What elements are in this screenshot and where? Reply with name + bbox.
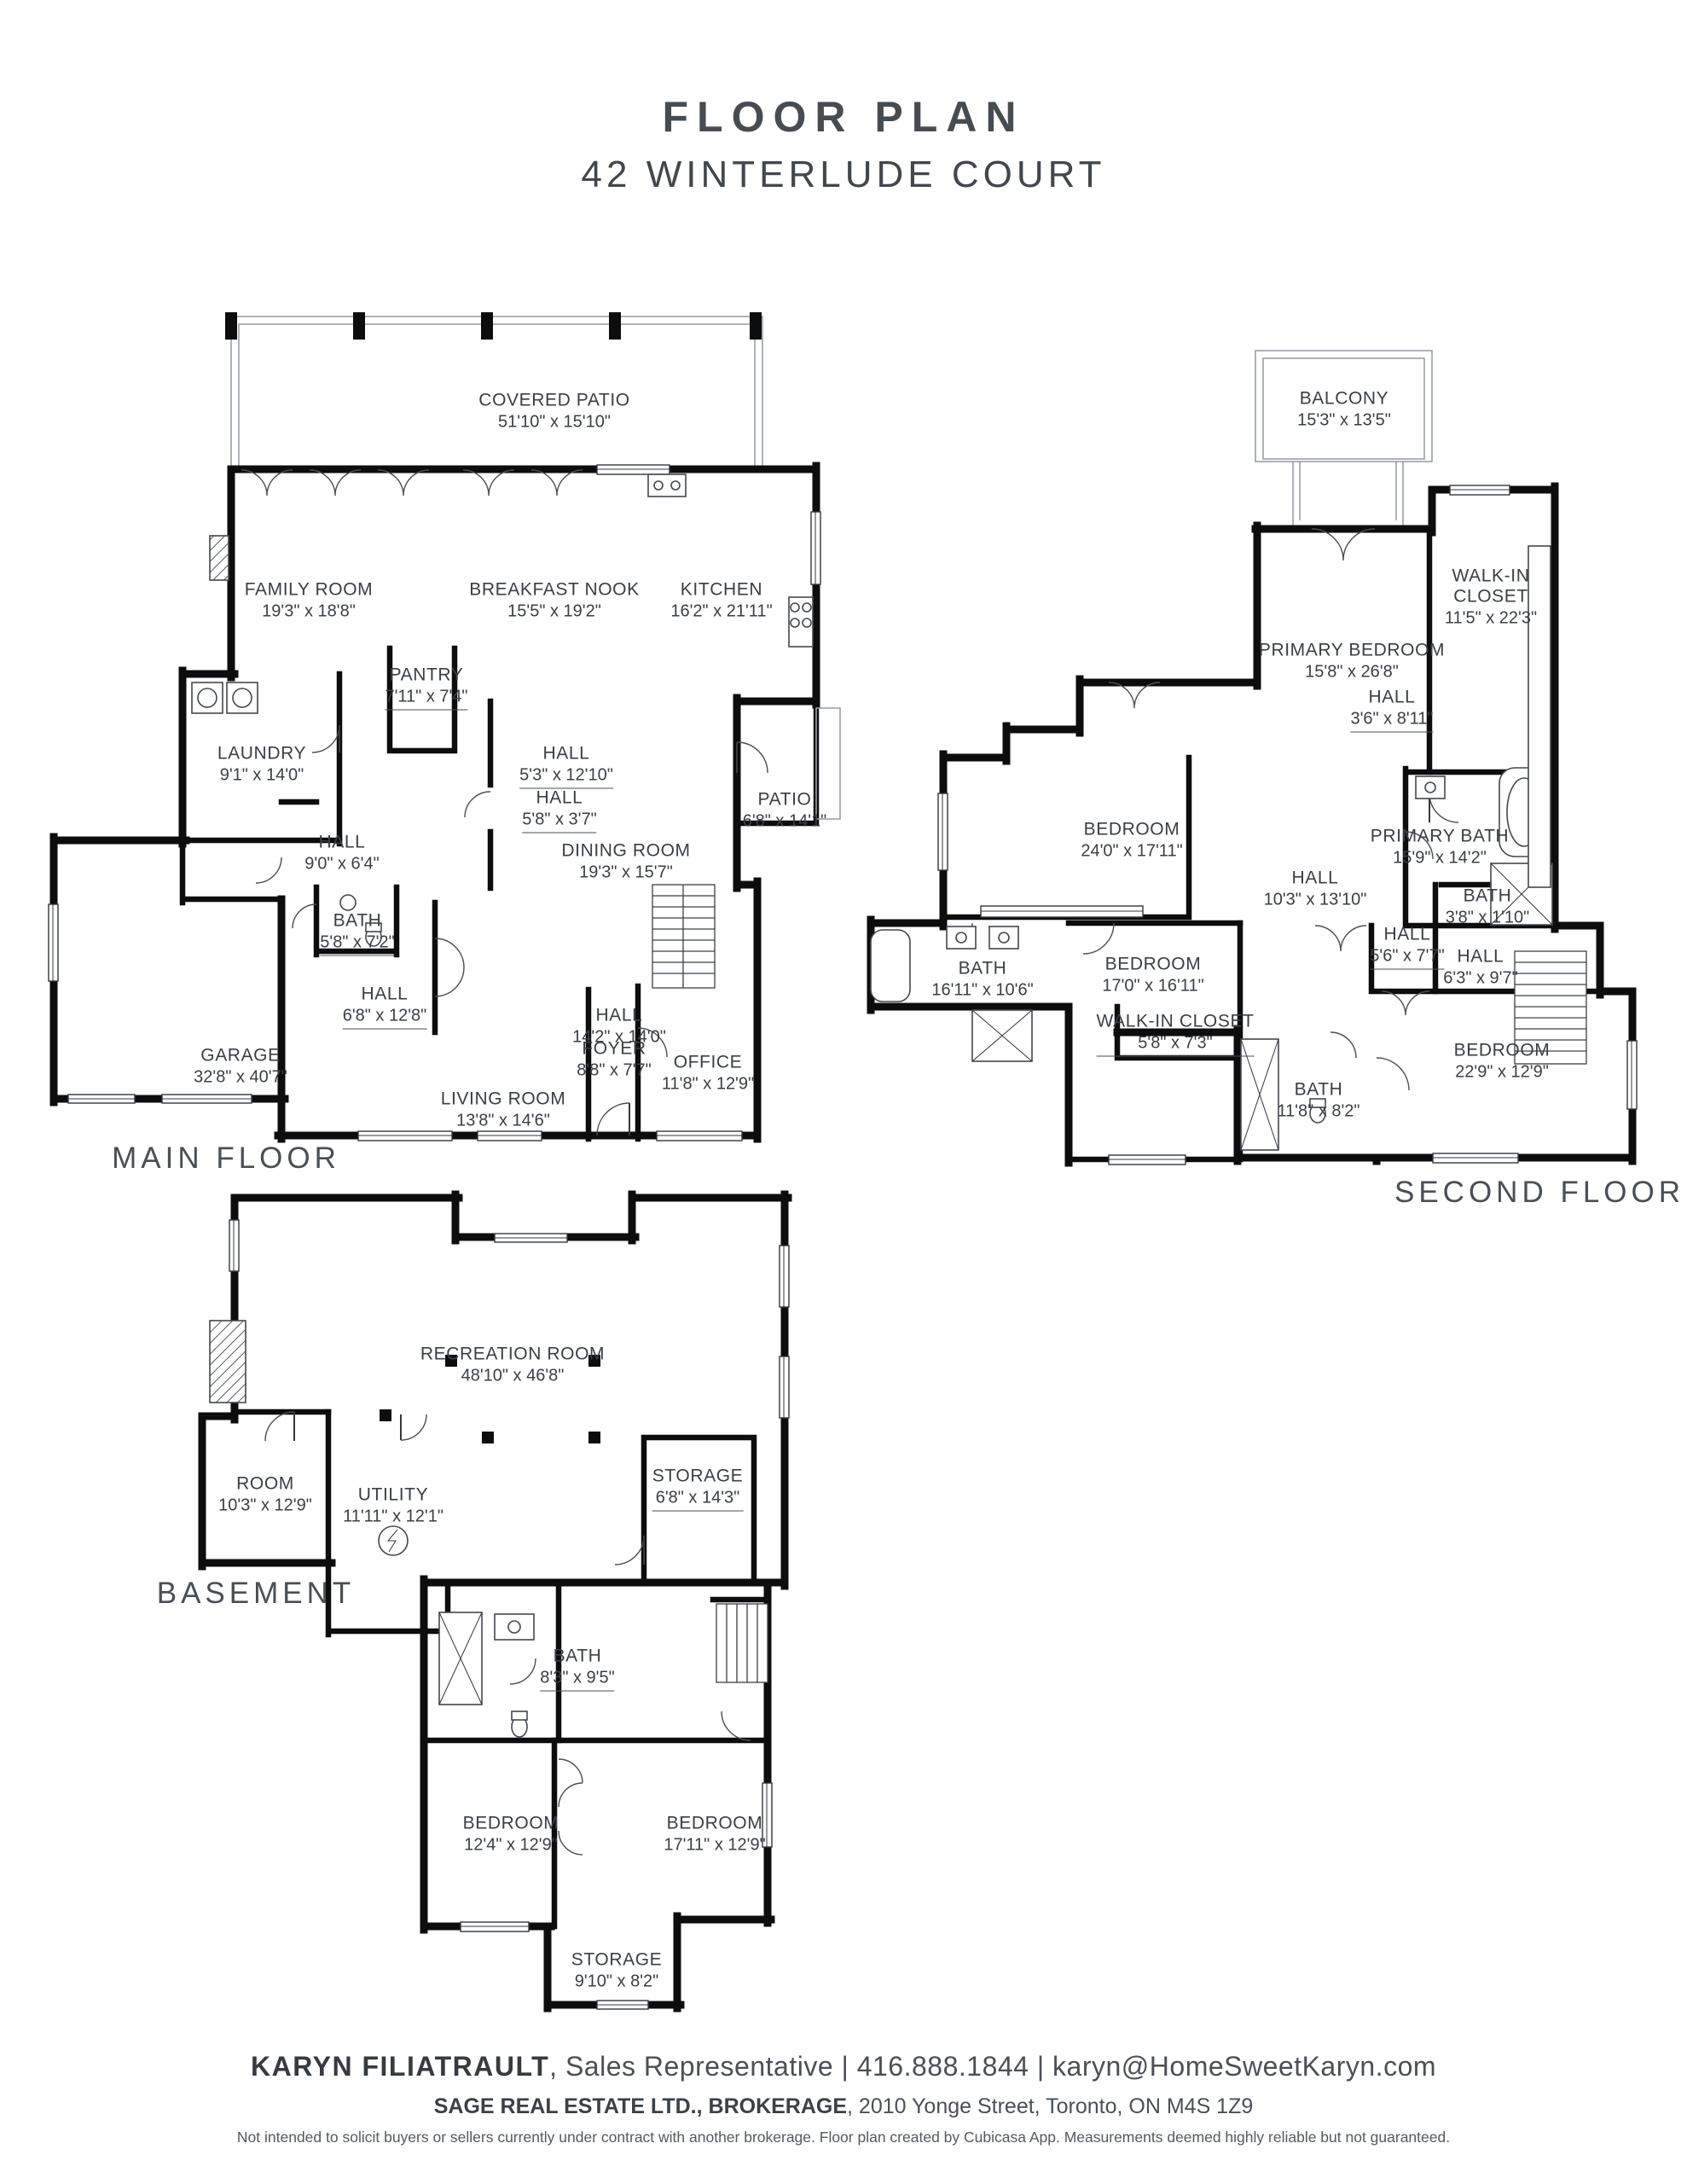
room-label-covered-patio: COVERED PATIO 51'10" x 15'10" (478, 391, 629, 433)
room-label-breakfast-nook: BREAKFAST NOOK 15'5" x 19'2" (469, 580, 639, 622)
room-label-basement-bedroom-17: BEDROOM 17'11" x 12'9" (664, 1814, 765, 1856)
main-windows (49, 465, 840, 1141)
balcony-outline (1255, 351, 1432, 527)
main-doors (241, 470, 768, 1136)
basement-label: BASEMENT (157, 1577, 356, 1611)
room-label-patio: PATIO 6'8" x 14'1" (743, 790, 827, 832)
basement-stairs (716, 1604, 768, 1682)
room-label-dining-room: DINING ROOM 19'3" x 15'7" (561, 841, 690, 883)
room-label-utility: UTILITY 11'11" x 12'1" (343, 1485, 443, 1527)
room-label-living-room: LIVING ROOM 13'8" x 14'6" (441, 1089, 566, 1131)
room-label-walk-in-closet-small: WALK-IN CLOSET 5'8" x 7'3" (1097, 1012, 1255, 1057)
room-label-bath-small: BATH 3'8" x 1'10" (1446, 886, 1530, 928)
room-label-pantry: PANTRY 7'11" x 7'4" (385, 665, 467, 711)
room-label-foyer: FOYER 8'8" x 7'7" (577, 1039, 651, 1081)
main-floor-plan (49, 312, 840, 1141)
room-label-storage-small: STORAGE 9'10" x 8'2" (571, 1950, 663, 1992)
main-floor-label: MAIN FLOOR (112, 1141, 340, 1176)
main-fixtures (192, 474, 813, 946)
room-label-basement-bath: BATH 8'3" x 9'5" (540, 1647, 614, 1692)
room-label-second-hall-d: HALL 6'3" x 9'7" (1443, 947, 1517, 989)
room-label-basement-bedroom-12: BEDROOM 12'4" x 12'9" (463, 1814, 559, 1856)
main-floor-walls (54, 466, 816, 1139)
room-label-bedroom-24: BEDROOM 24'0" x 17'11" (1081, 820, 1182, 862)
room-label-walk-in-closet: WALK-IN CLOSET 11'5" x 22'3" (1435, 566, 1546, 629)
room-label-family-room: FAMILY ROOM 19'3" x 18'8" (245, 580, 374, 622)
room-label-hall-c: HALL 9'0" x 6'4" (304, 833, 379, 874)
room-label-bath-16: BATH 16'11" x 10'6" (931, 959, 1033, 1001)
room-label-primary-bedroom: PRIMARY BEDROOM 15'8" x 26'8" (1259, 641, 1445, 682)
floor-plan-drawing (0, 0, 1687, 2184)
room-label-storage-tall: STORAGE 6'8" x 14'3" (652, 1467, 744, 1512)
room-label-second-hall-a: HALL 3'6" x 8'11" (1350, 688, 1433, 733)
room-label-office: OFFICE 11'8" x 12'9" (662, 1053, 754, 1095)
room-label-garage: GARAGE 32'8" x 40'7" (194, 1046, 287, 1088)
room-label-laundry: LAUNDRY 9'1" x 14'0" (217, 744, 306, 786)
room-label-main-bath: BATH 5'8" x 7'2" (320, 911, 394, 956)
room-label-recreation-room: RECREATION ROOM 48'10" x 46'8" (420, 1345, 605, 1386)
room-label-second-hall-c: HALL 5'6" x 7'7" (1370, 925, 1444, 970)
main-stairs (652, 885, 715, 988)
room-label-second-hall-b: HALL 10'3" x 13'10" (1264, 868, 1367, 910)
second-floor-label: SECOND FLOOR (1394, 1176, 1684, 1210)
room-label-kitchen: KITCHEN 16'2" x 21'11" (670, 580, 772, 622)
room-label-hall-d: HALL 6'8" x 12'8" (343, 985, 427, 1030)
room-label-hall-b: HALL 5'8" x 3'7" (522, 788, 596, 834)
room-label-room: ROOM 10'3" x 12'9" (218, 1474, 312, 1516)
room-label-bedroom-17: BEDROOM 17'0" x 16'11" (1102, 955, 1203, 996)
room-label-hall-a: HALL 5'3" x 12'10" (519, 744, 613, 789)
room-label-bedroom-22: BEDROOM 22'9" x 12'9" (1454, 1041, 1551, 1083)
room-label-balcony: BALCONY 15'3" x 13'5" (1297, 389, 1391, 431)
floor-plan-page: FLOOR PLAN 42 WINTERLUDE COURT COVERED P… (0, 0, 1687, 2184)
room-label-primary-bath: PRIMARY BATH 15'9" x 14'2" (1371, 827, 1509, 868)
room-label-bath-11: BATH 11'8" x 8'2" (1277, 1080, 1359, 1122)
